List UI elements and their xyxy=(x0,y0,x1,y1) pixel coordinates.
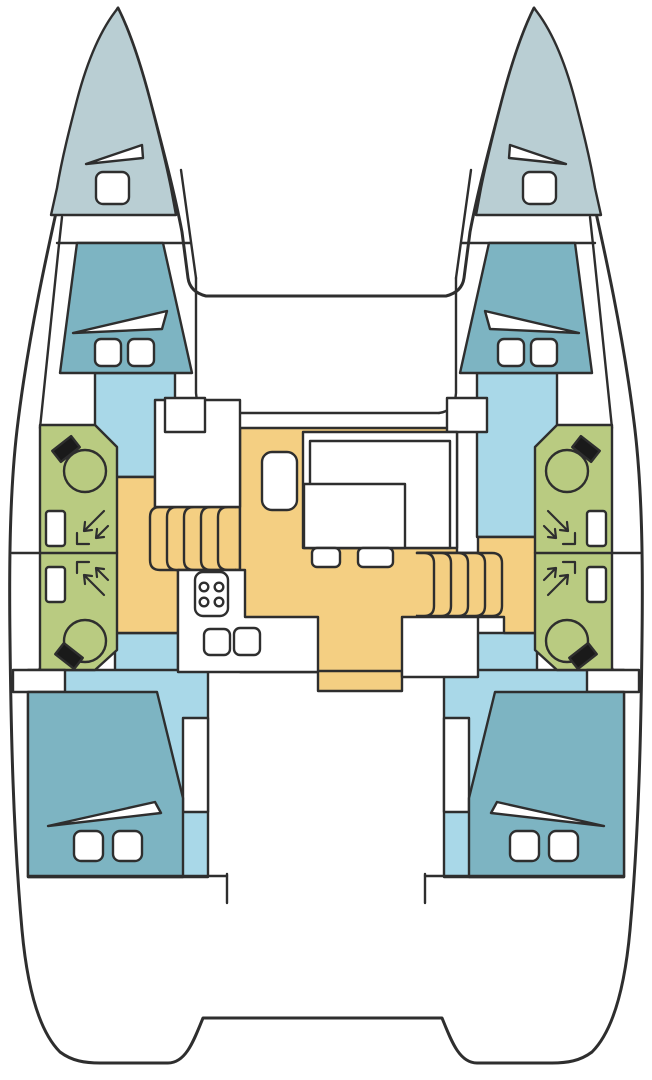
pillow-icon xyxy=(498,339,524,366)
salon-seat xyxy=(358,548,393,567)
deck-hatch-icon xyxy=(523,172,556,204)
deck-post-right xyxy=(447,398,487,432)
stove-burner-icon xyxy=(215,583,224,592)
salon-seat xyxy=(312,548,340,567)
aft-cabin-trim xyxy=(13,670,65,692)
salon-table xyxy=(304,484,405,548)
stove-burner-icon xyxy=(200,583,209,592)
galley-island xyxy=(262,452,297,510)
aft-cabin-trim xyxy=(183,718,208,812)
deck-hatch-icon xyxy=(96,172,129,204)
nav-station-block xyxy=(402,617,478,677)
catamaran-deck-plan xyxy=(0,0,652,1080)
pillow-icon xyxy=(74,831,103,861)
deck-plan-svg xyxy=(0,0,652,1080)
pillow-icon xyxy=(510,831,539,861)
companionway-steps-left xyxy=(150,507,235,570)
pillow-icon xyxy=(95,339,121,366)
galley-sink-icon xyxy=(234,628,260,655)
pillow-icon xyxy=(113,831,142,861)
deck-post-left xyxy=(165,398,205,432)
double-berth-aft-left xyxy=(28,692,183,877)
salon-entry-floor xyxy=(318,671,402,691)
stove-burner-icon xyxy=(200,598,209,607)
double-berth-aft-right xyxy=(469,692,624,877)
galley-sink-icon xyxy=(204,629,230,655)
toilet-icon xyxy=(546,450,588,492)
stove-4-burner-icon xyxy=(195,572,228,616)
toilet-icon xyxy=(64,450,106,492)
washbasin-icon xyxy=(587,511,606,546)
washbasin-icon xyxy=(587,567,606,602)
aft-cabin-trim xyxy=(587,670,639,692)
aft-cabin-trim xyxy=(444,718,469,812)
washbasin-icon xyxy=(46,567,65,602)
pillow-icon xyxy=(549,831,578,861)
pillow-icon xyxy=(128,339,154,366)
plan-root xyxy=(10,8,643,1063)
pillow-icon xyxy=(531,339,557,366)
washbasin-icon xyxy=(46,511,65,546)
companionway-steps-right xyxy=(417,553,502,616)
stove-burner-icon xyxy=(215,598,224,607)
